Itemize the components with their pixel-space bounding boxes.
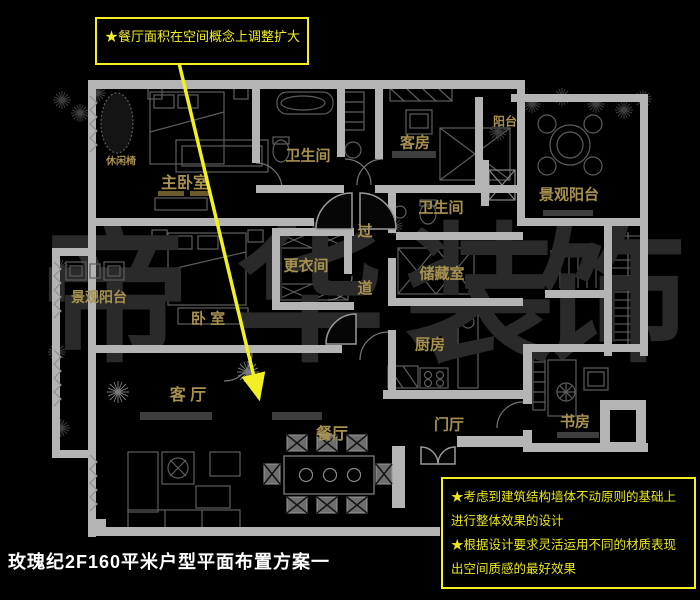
watermark-char: 帝 [40, 212, 190, 380]
note-line-4: 出空间质感的最好效果 [451, 557, 688, 581]
note-line-2: 进行整体效果的设计 [451, 509, 688, 533]
notes-box: ★考虑到建筑结构墙体不动原则的基础上进行整体效果的设计★根据设计要求灵活运用不同… [441, 477, 696, 589]
annotation-box: ★餐厅面积在空间概念上调整扩大 [95, 17, 309, 65]
floorplan-page: 帝 华 装 饰 [0, 0, 700, 600]
wall-niche [610, 410, 636, 442]
watermark-char: 华 [235, 212, 385, 380]
dining-chairs [264, 435, 392, 513]
note-line-3: ★根据设计要求灵活运用不同的材质表现 [451, 533, 688, 557]
annotation-text: ★餐厅面积在空间概念上调整扩大 [105, 29, 300, 44]
page-title: 玫瑰纪2F160平米户型平面布置方案一 [8, 548, 330, 574]
note-line-1: ★考虑到建筑结构墙体不动原则的基础上 [451, 485, 688, 509]
